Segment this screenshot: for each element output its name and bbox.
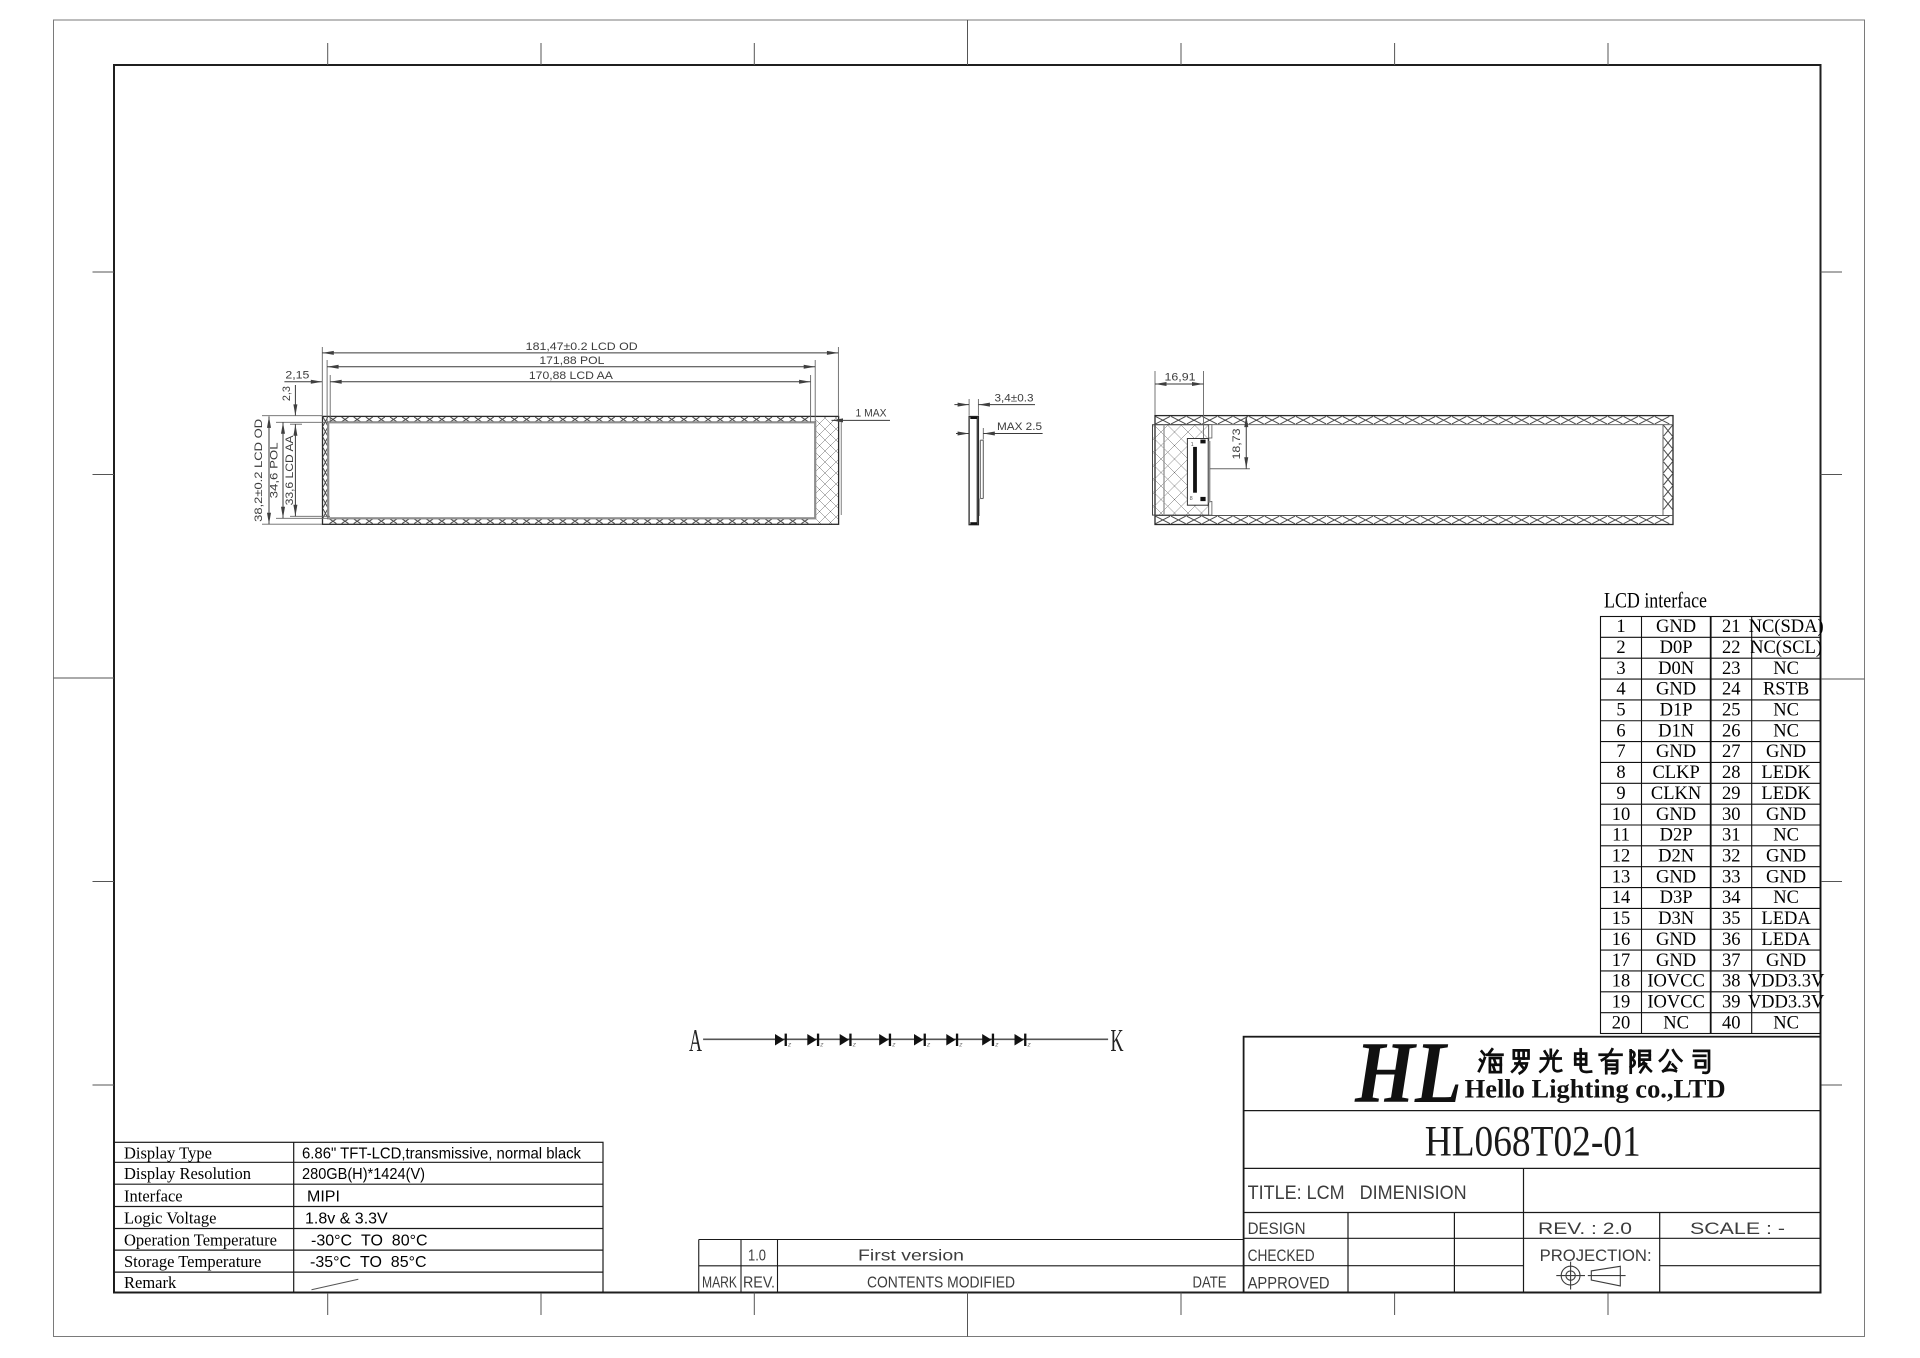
svg-text:7: 7 xyxy=(1616,742,1625,762)
svg-text:LEDK: LEDK xyxy=(1761,784,1811,804)
svg-text:38: 38 xyxy=(1722,972,1741,992)
svg-text:SCALE : -: SCALE : - xyxy=(1690,1220,1785,1238)
svg-text:36: 36 xyxy=(1722,930,1741,950)
svg-text:38,2±0.2 LCD OD: 38,2±0.2 LCD OD xyxy=(253,419,265,522)
svg-text:28: 28 xyxy=(1722,763,1741,783)
svg-text:APPROVED: APPROVED xyxy=(1248,1275,1330,1293)
svg-text:GND: GND xyxy=(1656,805,1696,825)
svg-text:First version: First version xyxy=(858,1248,964,1265)
svg-text:z: z xyxy=(819,1042,824,1049)
svg-text:5: 5 xyxy=(1616,701,1625,721)
svg-text:Remark: Remark xyxy=(124,1273,177,1292)
svg-text:z: z xyxy=(852,1042,857,1049)
svg-text:6.86" TFT-LCD,transmissive, no: 6.86" TFT-LCD,transmissive, normal black xyxy=(302,1145,582,1162)
svg-text:12: 12 xyxy=(1612,847,1631,867)
svg-text:DESIGN: DESIGN xyxy=(1248,1220,1306,1238)
svg-text:3,4±0.3: 3,4±0.3 xyxy=(995,392,1034,404)
svg-text:NC: NC xyxy=(1773,888,1799,908)
svg-text:15: 15 xyxy=(1612,909,1631,929)
svg-text:z: z xyxy=(958,1042,963,1049)
svg-text:Display Resolution: Display Resolution xyxy=(124,1164,251,1183)
svg-text:Display Type: Display Type xyxy=(124,1143,212,1162)
svg-text:Interface: Interface xyxy=(124,1186,183,1205)
svg-text:21: 21 xyxy=(1722,617,1741,637)
svg-text:HL068T02-01: HL068T02-01 xyxy=(1425,1119,1641,1166)
svg-text:40: 40 xyxy=(1722,1013,1741,1033)
svg-text:24: 24 xyxy=(1722,680,1741,700)
svg-text:GND: GND xyxy=(1656,680,1696,700)
svg-text:39: 39 xyxy=(1722,993,1741,1013)
svg-text:280GB(H)*1424(V): 280GB(H)*1424(V) xyxy=(302,1166,425,1183)
svg-text:20: 20 xyxy=(1612,1013,1631,1033)
svg-text:Logic Voltage: Logic Voltage xyxy=(124,1209,216,1228)
svg-text:16: 16 xyxy=(1612,930,1631,950)
svg-text:A: A xyxy=(689,1022,702,1058)
svg-text:32: 32 xyxy=(1722,847,1741,867)
svg-text:8: 8 xyxy=(1190,496,1193,502)
svg-text:18: 18 xyxy=(1612,972,1631,992)
svg-text:VDD3.3V: VDD3.3V xyxy=(1748,972,1825,992)
svg-text:8: 8 xyxy=(1616,763,1625,783)
svg-text:D2P: D2P xyxy=(1660,826,1693,846)
svg-text:18,73: 18,73 xyxy=(1231,429,1243,460)
svg-text:31: 31 xyxy=(1722,826,1741,846)
svg-text:181,47±0.2 LCD OD: 181,47±0.2 LCD OD xyxy=(526,341,638,353)
svg-text:13: 13 xyxy=(1612,867,1631,887)
svg-text:D3P: D3P xyxy=(1660,888,1693,908)
svg-text:REV.: REV. xyxy=(743,1274,775,1291)
svg-text:D1P: D1P xyxy=(1660,701,1693,721)
svg-text:1.8v & 3.3V: 1.8v & 3.3V xyxy=(305,1211,388,1228)
svg-text:GND: GND xyxy=(1766,742,1806,762)
svg-text:4: 4 xyxy=(1616,680,1625,700)
svg-text:33,6 LCD AA: 33,6 LCD AA xyxy=(284,435,296,506)
svg-text:GND: GND xyxy=(1766,867,1806,887)
svg-text:-30°C TO 80°C: -30°C TO 80°C xyxy=(311,1232,428,1249)
svg-text:CLKN: CLKN xyxy=(1651,784,1701,804)
svg-text:2: 2 xyxy=(1616,638,1625,658)
svg-text:GND: GND xyxy=(1656,617,1696,637)
svg-text:IOVCC: IOVCC xyxy=(1647,972,1705,992)
svg-text:GND: GND xyxy=(1766,951,1806,971)
svg-text:D1N: D1N xyxy=(1658,721,1694,741)
svg-text:1.0: 1.0 xyxy=(748,1248,766,1265)
svg-text:IOVCC: IOVCC xyxy=(1647,993,1705,1013)
svg-text:34,6 POL: 34,6 POL xyxy=(269,442,281,498)
svg-text:26: 26 xyxy=(1722,721,1741,741)
svg-text:LEDA: LEDA xyxy=(1761,930,1811,950)
svg-text:33: 33 xyxy=(1722,867,1741,887)
svg-text:K: K xyxy=(1111,1022,1124,1058)
svg-text:34: 34 xyxy=(1722,888,1741,908)
svg-text:z: z xyxy=(994,1042,999,1049)
svg-text:16,91: 16,91 xyxy=(1165,372,1196,384)
svg-text:D0P: D0P xyxy=(1660,638,1693,658)
svg-text:REV. : 2.0: REV. : 2.0 xyxy=(1538,1220,1632,1238)
svg-text:10: 10 xyxy=(1612,805,1631,825)
svg-text:RSTB: RSTB xyxy=(1763,680,1809,700)
svg-text:6: 6 xyxy=(1616,721,1625,741)
svg-text:CHECKED: CHECKED xyxy=(1248,1247,1315,1265)
svg-text:LCD interface: LCD interface xyxy=(1604,588,1707,613)
svg-text:23: 23 xyxy=(1722,659,1741,679)
svg-text:NC(SDA): NC(SDA) xyxy=(1749,617,1824,637)
svg-text:MIPI: MIPI xyxy=(307,1188,340,1205)
svg-text:NC: NC xyxy=(1773,701,1799,721)
svg-text:171,88 POL: 171,88 POL xyxy=(539,355,604,367)
svg-text:37: 37 xyxy=(1722,951,1741,971)
svg-text:35: 35 xyxy=(1722,909,1741,929)
svg-text:22: 22 xyxy=(1722,638,1741,658)
svg-text:MAX 2.5: MAX 2.5 xyxy=(997,421,1042,433)
svg-text:14: 14 xyxy=(1612,888,1631,908)
svg-text:30: 30 xyxy=(1722,805,1741,825)
svg-text:25: 25 xyxy=(1722,701,1741,721)
svg-text:NC: NC xyxy=(1773,659,1799,679)
svg-text:2,3: 2,3 xyxy=(281,386,293,401)
svg-text:3: 3 xyxy=(1616,659,1625,679)
svg-text:17: 17 xyxy=(1612,951,1631,971)
svg-text:CLKP: CLKP xyxy=(1652,763,1699,783)
svg-text:GND: GND xyxy=(1656,867,1696,887)
svg-text:CONTENTS MODIFIED: CONTENTS MODIFIED xyxy=(867,1274,1015,1291)
svg-text:1: 1 xyxy=(1616,617,1625,637)
svg-text:NC(SCL): NC(SCL) xyxy=(1750,638,1822,658)
svg-text:GND: GND xyxy=(1766,847,1806,867)
svg-text:GND: GND xyxy=(1766,805,1806,825)
svg-text:29: 29 xyxy=(1722,784,1741,804)
svg-text:GND: GND xyxy=(1656,930,1696,950)
svg-text:NC: NC xyxy=(1663,1013,1689,1033)
svg-text:VDD3.3V: VDD3.3V xyxy=(1748,993,1825,1013)
svg-text:D2N: D2N xyxy=(1658,847,1694,867)
svg-text:z: z xyxy=(891,1042,896,1049)
svg-text:NC: NC xyxy=(1773,721,1799,741)
svg-text:Hello Lighting co.,LTD: Hello Lighting co.,LTD xyxy=(1465,1075,1726,1104)
svg-text:NC: NC xyxy=(1773,1013,1799,1033)
svg-text:11: 11 xyxy=(1612,826,1630,846)
svg-text:GND: GND xyxy=(1656,951,1696,971)
svg-text:9: 9 xyxy=(1616,784,1625,804)
svg-text:170,88 LCD AA: 170,88 LCD AA xyxy=(529,370,614,382)
svg-text:DATE: DATE xyxy=(1193,1274,1227,1291)
svg-text:NC: NC xyxy=(1773,826,1799,846)
svg-text:-35°C TO 85°C: -35°C TO 85°C xyxy=(310,1254,427,1271)
svg-text:1: 1 xyxy=(1191,442,1194,448)
svg-text:HL: HL xyxy=(1354,1025,1462,1122)
svg-text:D3N: D3N xyxy=(1658,909,1694,929)
svg-text:27: 27 xyxy=(1722,742,1741,762)
svg-text:2,15: 2,15 xyxy=(285,369,309,381)
svg-text:LEDK: LEDK xyxy=(1761,763,1811,783)
svg-text:TITLE: LCM DIMENISION: TITLE: LCM DIMENISION xyxy=(1248,1183,1467,1204)
svg-text:D0N: D0N xyxy=(1658,659,1694,679)
svg-text:Storage Temperature: Storage Temperature xyxy=(124,1252,261,1271)
svg-text:PROJECTION:: PROJECTION: xyxy=(1540,1247,1652,1265)
svg-text:Operation Temperature: Operation Temperature xyxy=(124,1230,277,1249)
svg-text:1 MAX: 1 MAX xyxy=(856,408,887,420)
svg-text:LEDA: LEDA xyxy=(1761,909,1811,929)
svg-text:19: 19 xyxy=(1612,993,1631,1013)
svg-text:MARK: MARK xyxy=(702,1274,737,1291)
svg-text:GND: GND xyxy=(1656,742,1696,762)
